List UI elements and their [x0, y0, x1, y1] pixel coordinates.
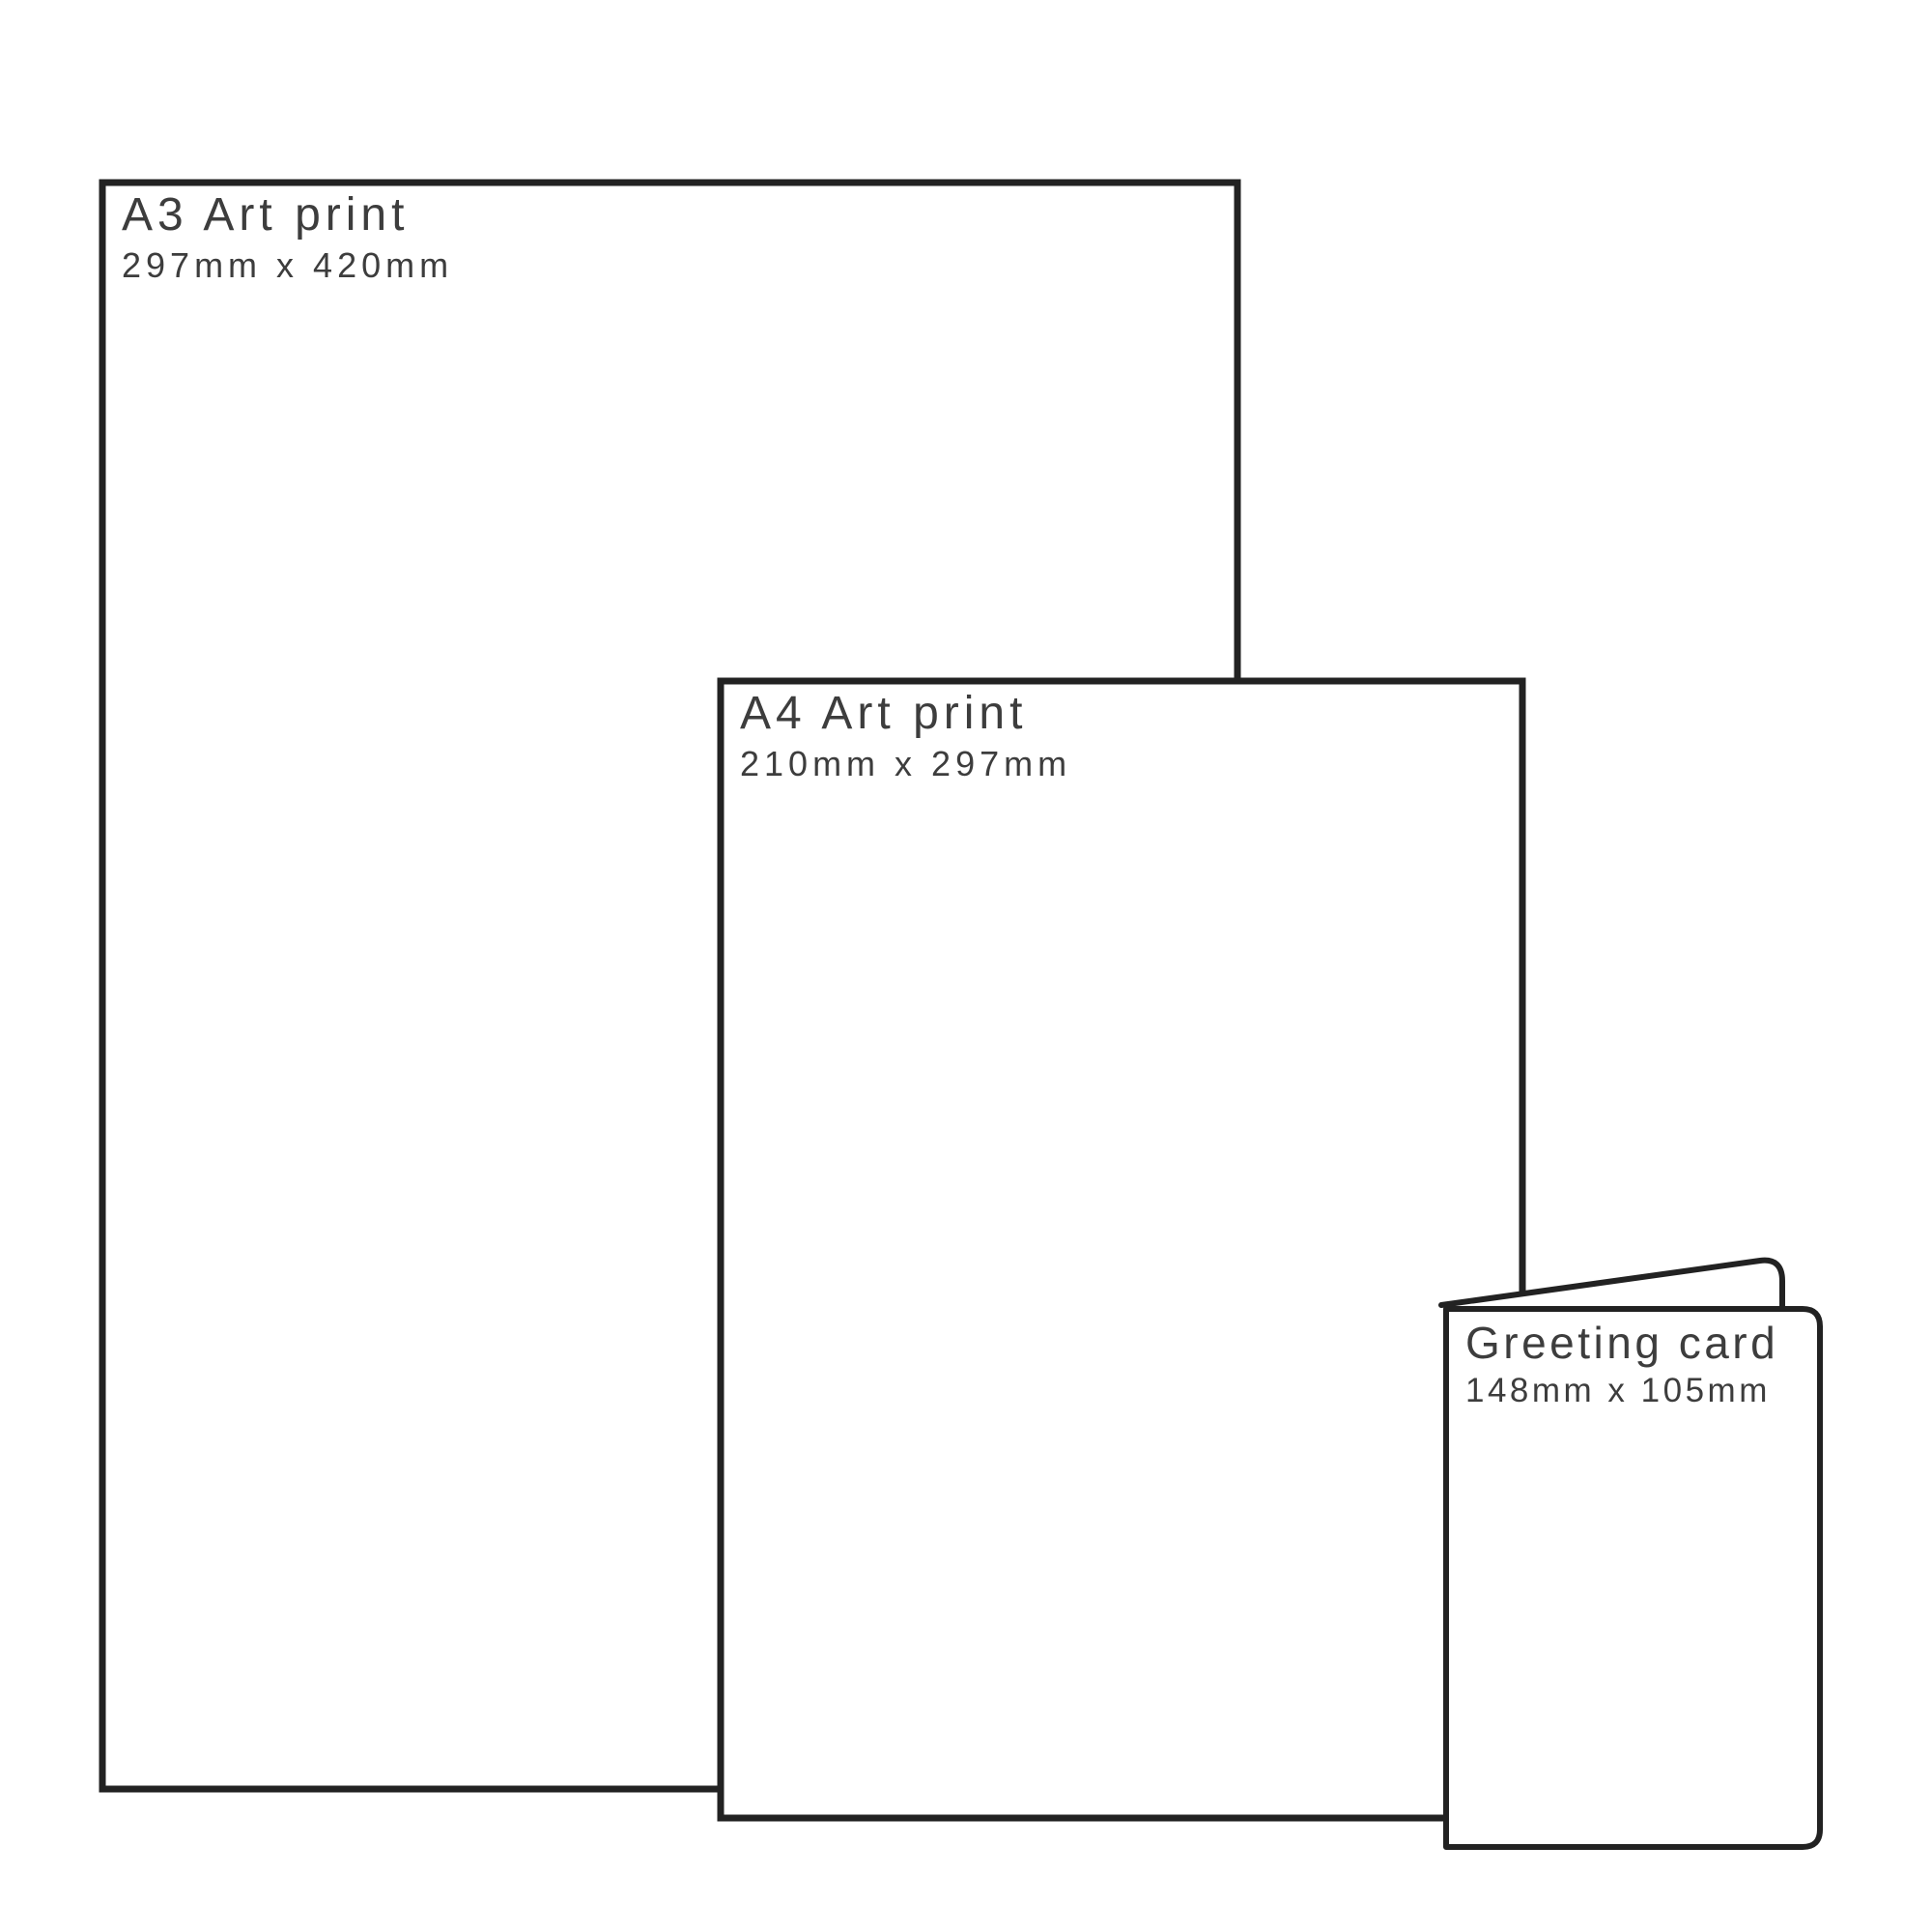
greeting-card-title: Greeting card — [1465, 1318, 1778, 1368]
diagram-canvas: A3 Art print 297mm x 420mm A4 Art print … — [0, 0, 1932, 1932]
a3-print-label: A3 Art print 297mm x 420mm — [122, 189, 453, 288]
a3-print-title: A3 Art print — [122, 189, 453, 241]
a4-print-outline — [721, 681, 1522, 1818]
a4-print-label: A4 Art print 210mm x 297mm — [740, 688, 1071, 786]
greeting-card-dimensions: 148mm x 105mm — [1465, 1370, 1778, 1412]
a3-print-dimensions: 297mm x 420mm — [122, 243, 453, 288]
a4-print-dimensions: 210mm x 297mm — [740, 742, 1071, 786]
size-comparison-shapes — [0, 0, 1932, 1932]
a4-print-title: A4 Art print — [740, 688, 1071, 740]
greeting-card-label: Greeting card 148mm x 105mm — [1465, 1318, 1778, 1412]
